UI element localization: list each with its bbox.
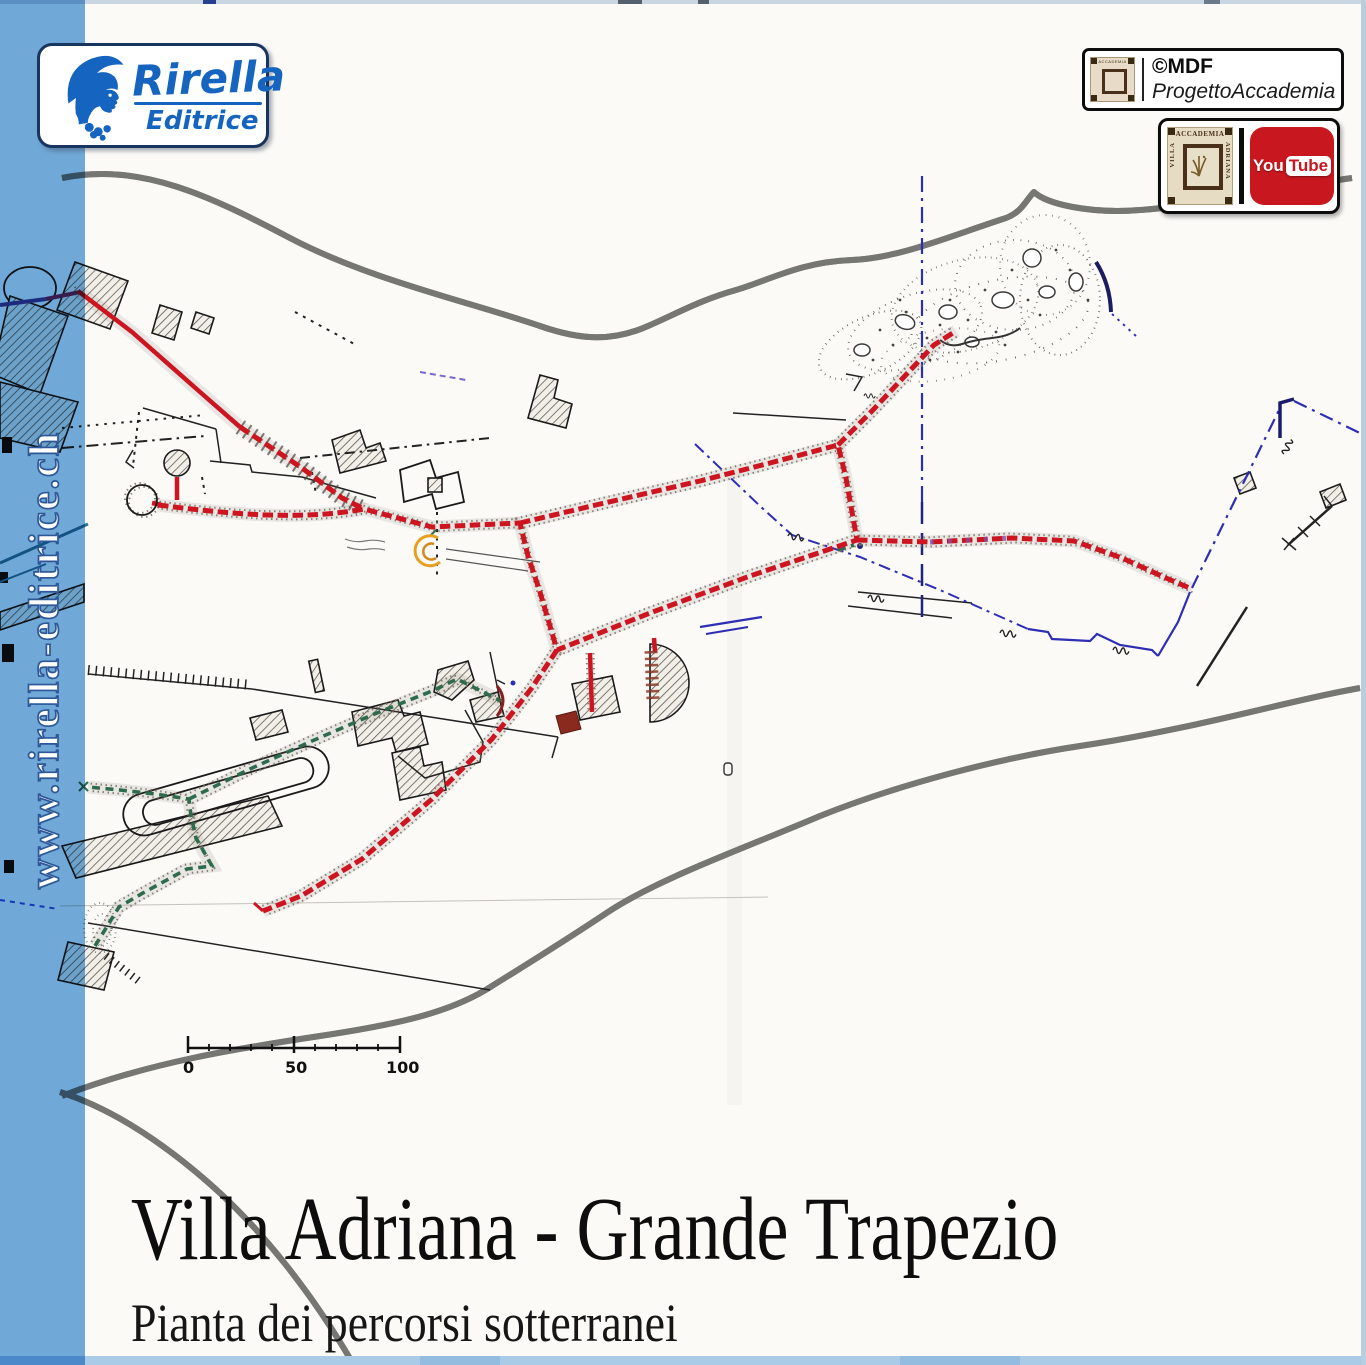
badge-divider	[1142, 58, 1144, 101]
youtube-icon[interactable]: YouTube	[1250, 127, 1334, 205]
caption-block: Villa Adriana - Grande Trapezio Pianta d…	[131, 1183, 1290, 1354]
scan-band	[727, 470, 742, 1105]
publisher-subname: Editrice	[146, 108, 285, 134]
badge-divider	[1239, 128, 1244, 204]
seal-text-left: VILLA	[1169, 142, 1176, 168]
athena-helmet-head-icon	[46, 50, 128, 142]
villa-adriana-accademia-seal: ACCADEMIA VILLA ADRIANA	[1167, 127, 1233, 205]
map-subtitle: Pianta dei percorsi sotterranei	[131, 1292, 1116, 1354]
copyright-text: ©MDF	[1152, 55, 1335, 79]
seal-text-top: ACCADEMIA	[1168, 130, 1232, 138]
accademia-seal-icon: ACCADEMIA	[1090, 57, 1135, 102]
plant-sketch-icon	[1187, 148, 1211, 178]
publisher-name: Rirella	[131, 55, 285, 102]
seal-text-right: ADRIANA	[1224, 142, 1231, 180]
round-tower	[164, 450, 190, 476]
bottom-border-bar	[0, 1356, 1366, 1365]
website-link[interactable]: www.rirella-editrice.ch	[21, 431, 69, 889]
copyright-badge: ACCADEMIA ©MDF ProgettoAccademia	[1082, 48, 1344, 111]
map-title: Villa Adriana - Grande Trapezio	[131, 1183, 1058, 1278]
scale-label-0: 0	[183, 1058, 194, 1077]
right-border	[1361, 0, 1366, 1365]
scale-label-100: 100	[386, 1058, 419, 1077]
youtube-channel-badge[interactable]: ACCADEMIA VILLA ADRIANA YouTube	[1158, 118, 1340, 214]
top-border	[0, 0, 1366, 4]
publisher-logo: Rirella Editrice	[37, 43, 269, 148]
scale-label-50: 50	[285, 1058, 307, 1077]
project-name: ProgettoAccademia	[1152, 80, 1335, 104]
